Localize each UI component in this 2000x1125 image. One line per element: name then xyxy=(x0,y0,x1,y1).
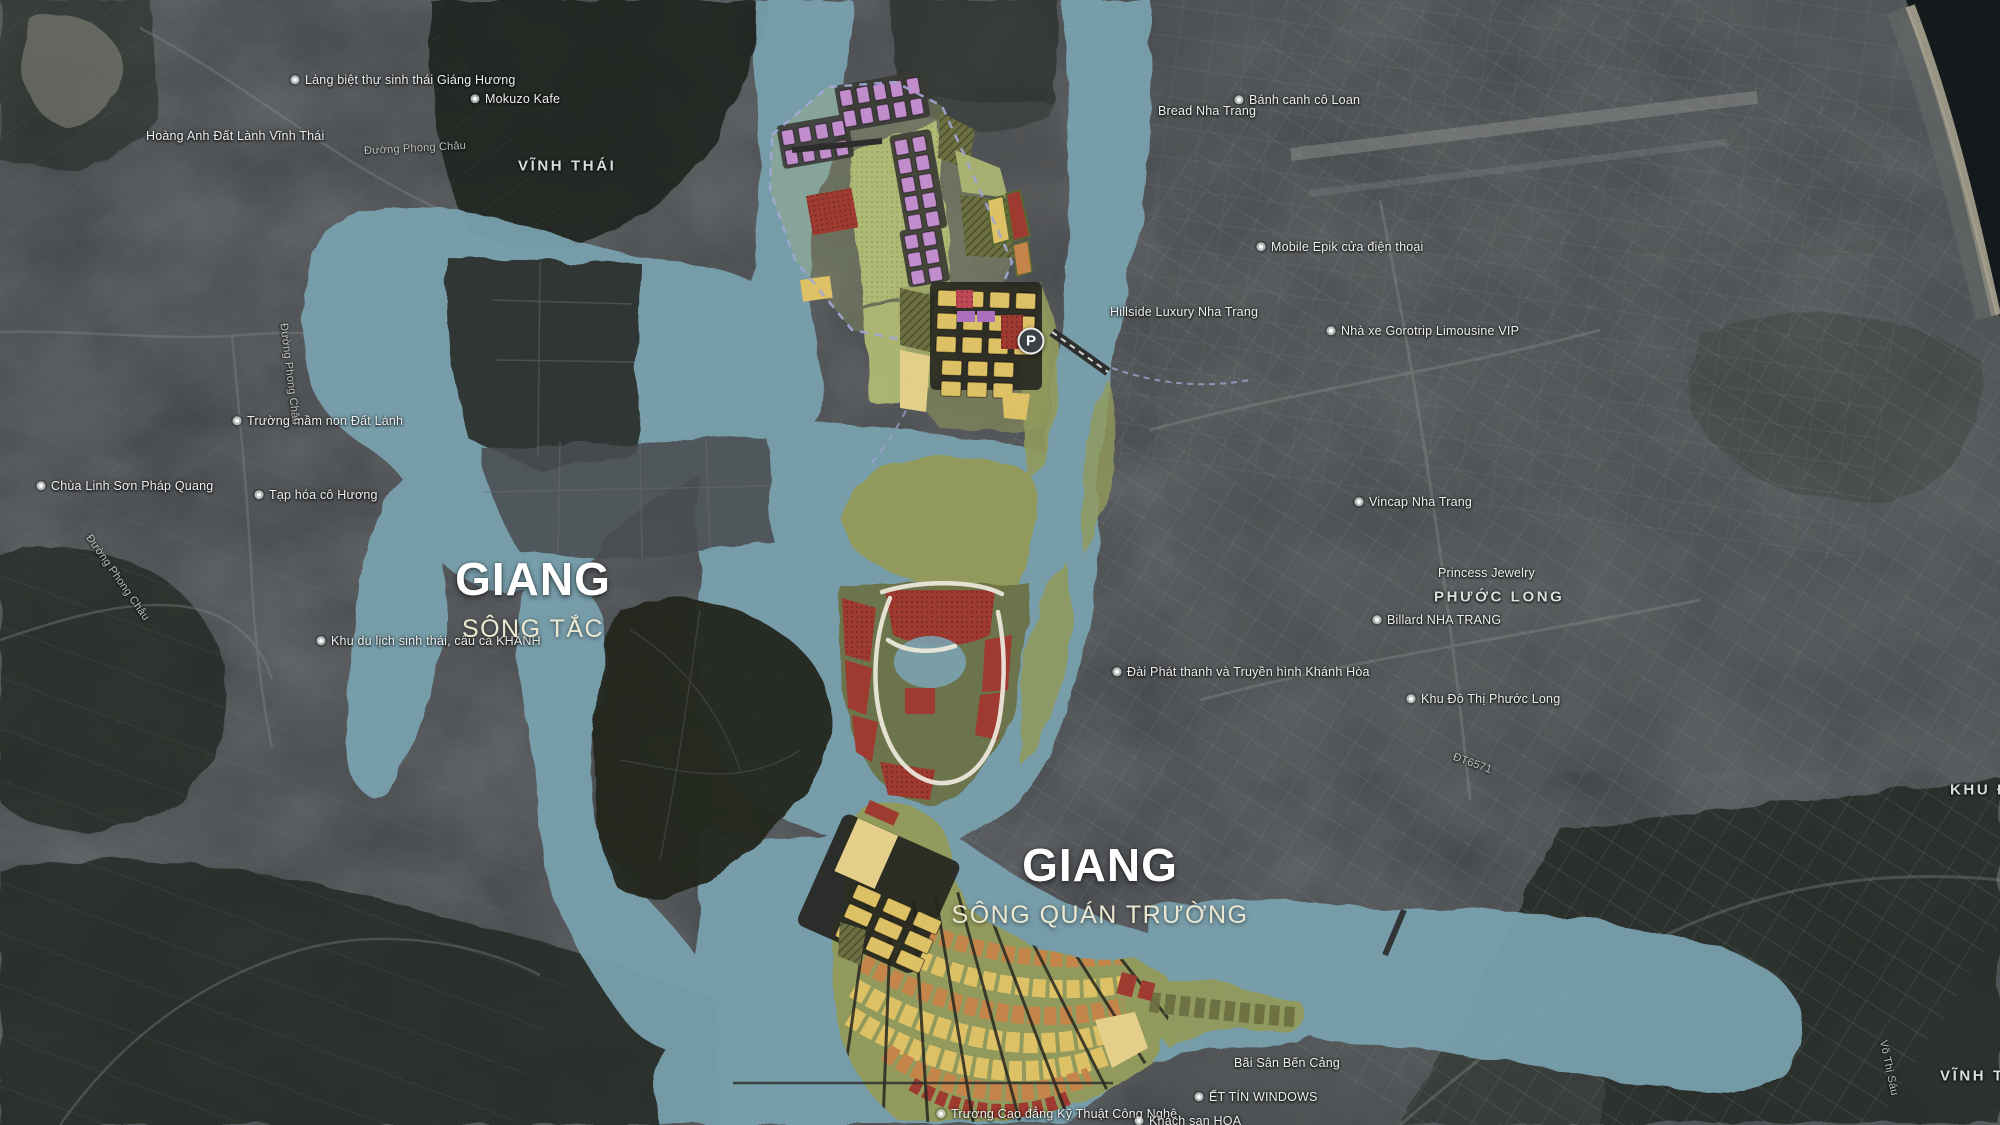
poi-label-text: Khách sạn HOA xyxy=(1149,1115,1241,1125)
poi-pin-icon xyxy=(1354,497,1364,507)
poi-pin-icon xyxy=(1326,326,1336,336)
area-label: PHƯỚC LONG xyxy=(1434,590,1564,605)
poi-label-text: Đài Phát thanh và Truyền hình Khánh Hòa xyxy=(1127,666,1370,679)
poi-label[interactable]: Mobile Epik cửa điện thoại xyxy=(1256,241,1424,254)
area-label-text: VĨNH TRƯỜNG xyxy=(1940,1069,2000,1084)
poi-label-text: Princess Jewelry xyxy=(1438,567,1535,580)
poi-label[interactable]: Mokuzo Kafe xyxy=(470,93,560,106)
road-label: Đường Phong Châu xyxy=(277,323,300,426)
poi-label-text: Billard NHA TRANG xyxy=(1387,614,1501,627)
river-subtitle: SÔNG QUÁN TRƯỜNG xyxy=(952,901,1249,930)
poi-label-text: Hoàng Anh Đất Lành Vĩnh Thái xyxy=(146,130,324,143)
poi-label[interactable]: Bãi Sân Bến Cảng xyxy=(1234,1057,1340,1070)
poi-label[interactable]: Bread Nha Trang xyxy=(1158,105,1256,118)
poi-label[interactable]: Khu Đô Thị Phước Long xyxy=(1406,693,1560,706)
satellite-map-canvas: Làng biệt thự sinh thái Giáng HươngMokuz… xyxy=(0,0,2000,1125)
river-title: GIANG xyxy=(455,552,611,606)
parking-badge-icon[interactable]: P xyxy=(1018,328,1045,355)
poi-label[interactable]: Trường mầm non Đất Lành xyxy=(232,415,403,428)
area-label-text: KHU ĐÔ xyxy=(1950,783,2000,798)
poi-label-text: Trường mầm non Đất Lành xyxy=(247,415,403,428)
poi-label-text: Hillside Luxury Nha Trang xyxy=(1110,306,1258,319)
poi-label-text: Nhà xe Gorotrip Limousine VIP xyxy=(1341,325,1519,338)
map-labels-layer: Làng biệt thự sinh thái Giáng HươngMokuz… xyxy=(0,0,2000,1125)
poi-pin-icon xyxy=(1112,667,1122,677)
poi-label-text: Làng biệt thự sinh thái Giáng Hương xyxy=(305,74,516,87)
poi-label[interactable]: Khách sạn HOA xyxy=(1134,1115,1241,1125)
poi-pin-icon xyxy=(1372,615,1382,625)
road-label-text: Đường Phong Châu xyxy=(364,141,467,157)
poi-label-text: Chùa Linh Sơn Pháp Quang xyxy=(51,480,213,493)
poi-label-text: Vincap Nha Trang xyxy=(1369,496,1472,509)
poi-label-text: Khu Đô Thị Phước Long xyxy=(1421,693,1560,706)
poi-label[interactable]: Đài Phát thanh và Truyền hình Khánh Hòa xyxy=(1112,666,1370,679)
poi-label-text: Bread Nha Trang xyxy=(1158,105,1256,118)
area-label: VĨNH THÁI xyxy=(518,159,616,174)
poi-pin-icon xyxy=(1256,242,1266,252)
poi-label[interactable]: Hillside Luxury Nha Trang xyxy=(1110,306,1258,319)
poi-label-text: Bãi Sân Bến Cảng xyxy=(1234,1057,1340,1070)
road-label: Đường Phong Châu xyxy=(364,141,467,157)
road-label-text: ĐT6571 xyxy=(1451,752,1493,776)
river-name-label: GIANGSÔNG QUÁN TRƯỜNG xyxy=(952,838,1249,930)
poi-label-text: Mokuzo Kafe xyxy=(485,93,560,106)
poi-label-text: ẾT TÍN WINDOWS xyxy=(1209,1091,1318,1104)
poi-label-text: Tạp hóa cô Hương xyxy=(269,489,378,502)
poi-pin-icon xyxy=(1194,1092,1204,1102)
poi-label[interactable]: Làng biệt thự sinh thái Giáng Hương xyxy=(290,74,516,87)
river-subtitle: SÔNG TẮC xyxy=(455,615,611,644)
poi-label[interactable]: ẾT TÍN WINDOWS xyxy=(1194,1091,1318,1104)
poi-pin-icon xyxy=(254,490,264,500)
poi-label[interactable]: Billard NHA TRANG xyxy=(1372,614,1501,627)
road-label-text: Võ Thị Sáu xyxy=(1877,1039,1899,1096)
poi-label-text: Mobile Epik cửa điện thoại xyxy=(1271,241,1424,254)
poi-pin-icon xyxy=(316,636,326,646)
area-label: KHU ĐÔ xyxy=(1950,783,2000,798)
poi-label[interactable]: Princess Jewelry xyxy=(1438,567,1535,580)
road-label: ĐT6571 xyxy=(1451,752,1493,776)
road-label-text: Đường Phong Châu xyxy=(277,323,300,426)
area-label-text: VĨNH THÁI xyxy=(518,159,616,174)
poi-label[interactable]: Nhà xe Gorotrip Limousine VIP xyxy=(1326,325,1519,338)
poi-label[interactable]: Vincap Nha Trang xyxy=(1354,496,1472,509)
river-name-label: GIANGSÔNG TẮC xyxy=(455,552,611,644)
poi-label[interactable]: Chùa Linh Sơn Pháp Quang xyxy=(36,480,213,493)
poi-pin-icon xyxy=(36,481,46,491)
poi-label[interactable]: Hoàng Anh Đất Lành Vĩnh Thái xyxy=(146,130,324,143)
poi-pin-icon xyxy=(232,416,242,426)
area-label: VĨNH TRƯỜNG xyxy=(1940,1069,2000,1084)
area-label-text: PHƯỚC LONG xyxy=(1434,590,1564,605)
poi-pin-icon xyxy=(290,75,300,85)
poi-label-text: Bánh canh cô Loan xyxy=(1249,94,1360,107)
road-label: Đường Phong Châu xyxy=(83,533,151,623)
road-label-text: Đường Phong Châu xyxy=(83,533,151,623)
poi-pin-icon xyxy=(936,1109,946,1119)
poi-label[interactable]: Tạp hóa cô Hương xyxy=(254,489,378,502)
road-label: Võ Thị Sáu xyxy=(1877,1039,1899,1096)
poi-pin-icon xyxy=(470,94,480,104)
river-title: GIANG xyxy=(952,838,1249,892)
poi-pin-icon xyxy=(1406,694,1416,704)
poi-pin-icon xyxy=(1134,1116,1144,1125)
